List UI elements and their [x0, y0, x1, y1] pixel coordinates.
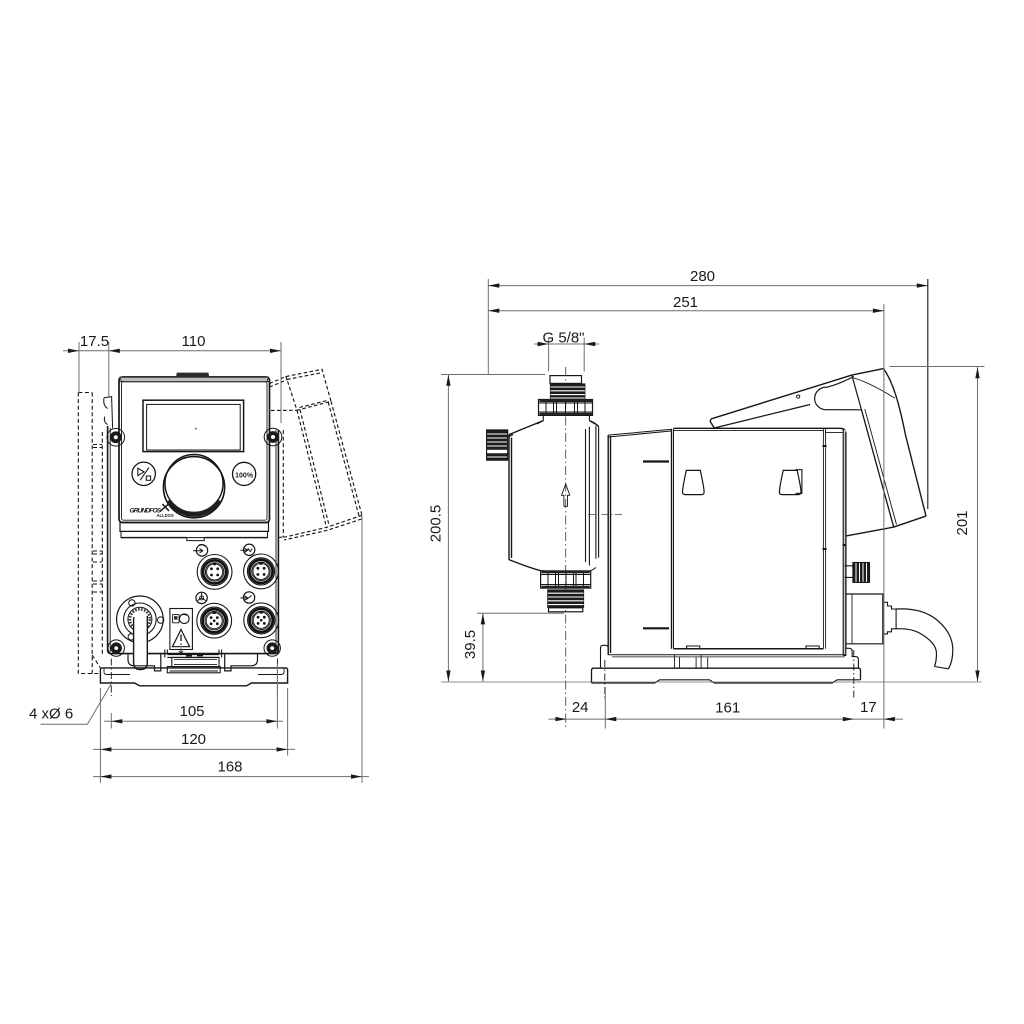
- svg-text:251: 251: [673, 294, 698, 311]
- svg-text:17.5: 17.5: [80, 333, 109, 350]
- svg-text:200.5: 200.5: [428, 505, 445, 543]
- svg-text:17: 17: [860, 699, 877, 716]
- svg-text:ALLDOS: ALLDOS: [157, 513, 174, 518]
- svg-text:168: 168: [217, 758, 242, 775]
- svg-text:100%: 100%: [235, 472, 254, 479]
- svg-text:105: 105: [179, 703, 204, 720]
- svg-text:280: 280: [690, 268, 715, 285]
- svg-text:4 xØ 6: 4 xØ 6: [29, 706, 73, 723]
- svg-text:G 5/8": G 5/8": [542, 329, 584, 346]
- svg-text:24: 24: [572, 699, 589, 716]
- svg-text:201: 201: [954, 510, 971, 535]
- svg-text:110: 110: [182, 333, 206, 350]
- svg-text:120: 120: [181, 731, 206, 748]
- svg-text:161: 161: [715, 700, 740, 717]
- svg-text:39.5: 39.5: [462, 630, 479, 659]
